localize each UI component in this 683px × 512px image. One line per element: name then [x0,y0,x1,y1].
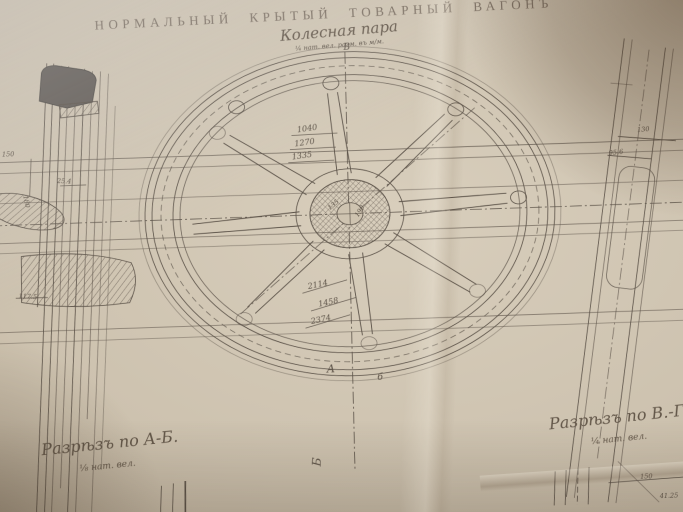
bottom-left-fragment [159,481,186,512]
dim-radius-3: 1335 [291,150,312,162]
marker-a: А [325,362,335,375]
bottom-dim-150: 150 [640,472,653,480]
section-ab-caption: Разрѣзъ по А-Б. [39,427,178,460]
section-ab-scale: ⅛ нат. вел. [79,459,136,475]
right-dim-130: 130 [637,125,650,134]
section-vg-caption: Разрѣзъ по В.-Г. [547,400,683,433]
left-dim-117: 117.5 [18,292,37,301]
wheelset-drawing: НОРМАЛЬНЫЙ КРЫТЫЙ ТОВАРНЫЙ ВАГОНЪ Колесн… [0,0,683,512]
bottom-dim-41: 41.25 [659,492,679,501]
section-vg-scale: ¼ нат. вел. [590,431,647,448]
dim-width-3: 2374 [309,313,332,326]
marker-b-small: б [377,372,383,383]
left-dim-150: 150 [2,150,15,158]
dim-radius-1: 1040 [296,123,317,135]
dim-width-1: 2114 [306,278,329,291]
wheel-seat-section-hatched [20,252,137,309]
wheel-front-view [134,40,569,476]
marker-b: Б [309,457,324,468]
right-dim-95: 95.6 [608,148,623,157]
marker-v: В [342,43,350,53]
photographed-blueprint: НОРМАЛЬНЫЙ КРЫТЫЙ ТОВАРНЫЙ ВАГОНЪ Колесн… [0,0,683,512]
axle-section-hatched [0,186,68,237]
left-dim-25: 25.4 [56,177,72,186]
dim-width-2: 1458 [317,296,339,309]
dim-radius-2: 1270 [294,137,315,149]
